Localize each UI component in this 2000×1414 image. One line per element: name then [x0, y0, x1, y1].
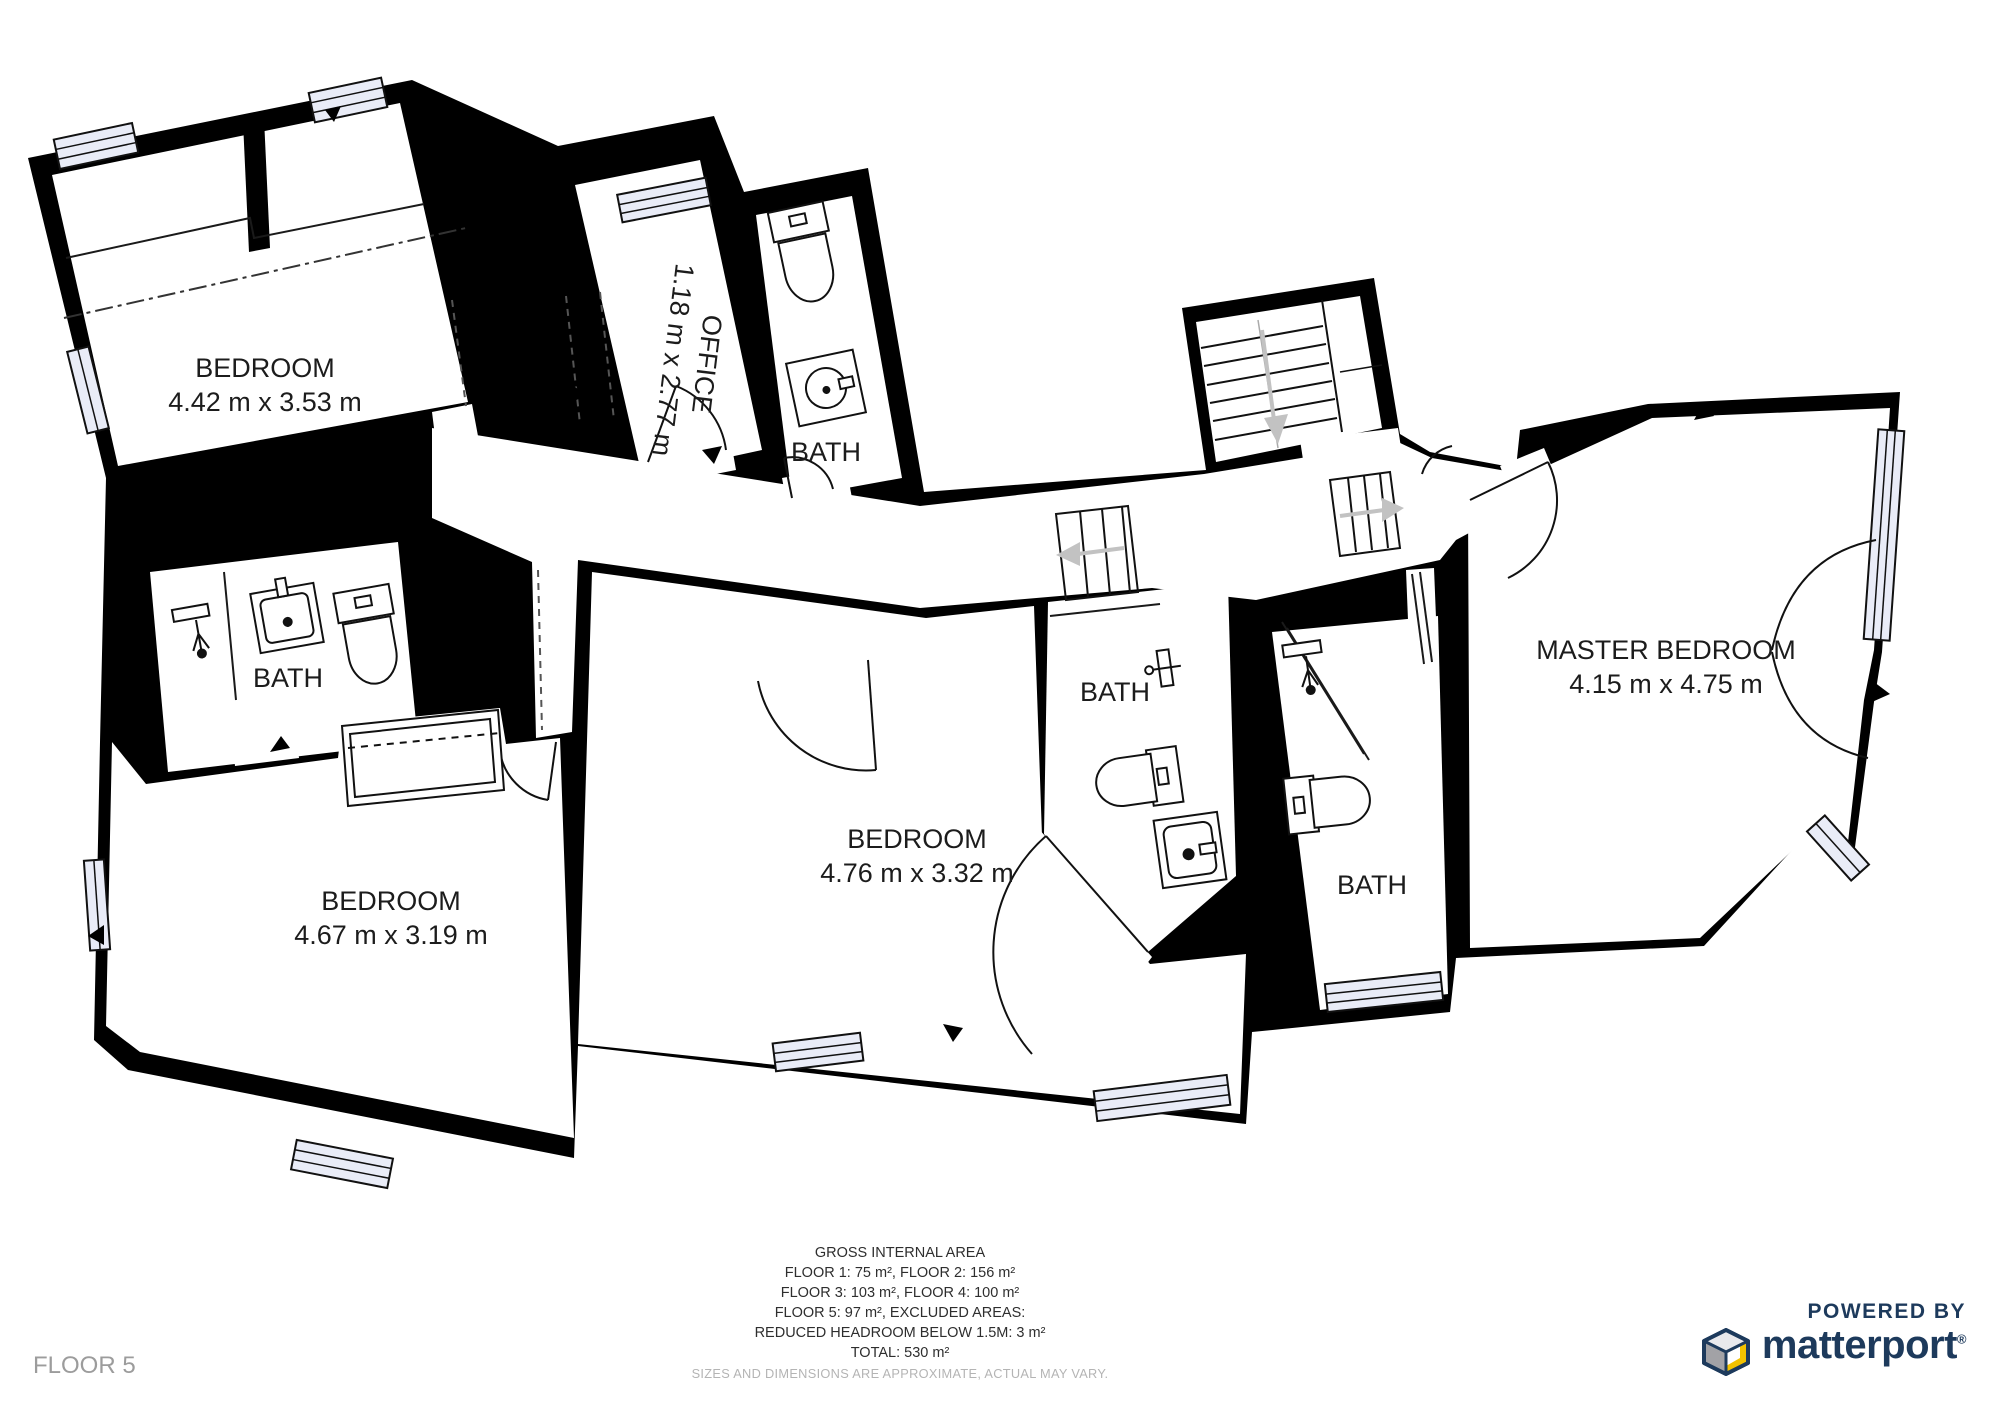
sink-icon: [1154, 812, 1227, 888]
window: [291, 1140, 393, 1188]
room-dims: 4.67 m x 3.19 m: [294, 918, 488, 952]
room-name: BEDROOM: [847, 824, 987, 854]
area-summary-title: GROSS INTERNAL AREA: [692, 1243, 1109, 1263]
floorplan-drawing: [0, 0, 2000, 1414]
disclaimer-text: SIZES AND DIMENSIONS ARE APPROXIMATE, AC…: [692, 1364, 1109, 1384]
room-name: BATH: [791, 437, 861, 467]
floorplan-page: BEDROOM 4.42 m x 3.53 m OFFICE 1.18 m x …: [0, 0, 2000, 1414]
label-bedroom-mid: BEDROOM 4.76 m x 3.32 m: [820, 822, 1014, 890]
room-name: BATH: [253, 663, 323, 693]
area-summary-line: FLOOR 3: 103 m², FLOOR 4: 100 m²: [692, 1283, 1109, 1303]
room-name: BATH: [1080, 677, 1150, 707]
brand-name: matterport: [1762, 1323, 1957, 1367]
label-bedroom-tl: BEDROOM 4.42 m x 3.53 m: [168, 351, 362, 419]
area-summary-line: FLOOR 1: 75 m², FLOOR 2: 156 m²: [692, 1263, 1109, 1283]
area-summary: GROSS INTERNAL AREA FLOOR 1: 75 m², FLOO…: [692, 1243, 1109, 1384]
label-master-bedroom: MASTER BEDROOM 4.15 m x 4.75 m: [1536, 633, 1796, 701]
label-bath-top: BATH: [791, 435, 861, 469]
area-summary-line: REDUCED HEADROOM BELOW 1.5M: 3 m²: [692, 1323, 1109, 1343]
label-bath-right: BATH: [1337, 868, 1407, 902]
matterport-wordmark: matterport®: [1762, 1324, 1966, 1366]
label-bedroom-bl: BEDROOM 4.67 m x 3.19 m: [294, 884, 488, 952]
room-dims: 4.15 m x 4.75 m: [1536, 667, 1796, 701]
floor-label: FLOOR 5: [33, 1352, 136, 1380]
powered-by-text: POWERED BY: [1762, 1300, 1966, 1324]
area-summary-line: FLOOR 5: 97 m², EXCLUDED AREAS:: [692, 1303, 1109, 1323]
room-dims: 4.42 m x 3.53 m: [168, 385, 362, 419]
room-name: MASTER BEDROOM: [1536, 635, 1796, 665]
bathtub-icon: [342, 710, 504, 806]
area-summary-line: TOTAL: 530 m²: [692, 1343, 1109, 1363]
registered-mark: ®: [1957, 1332, 1966, 1347]
sink-icon: [786, 350, 866, 427]
label-bath-mid: BATH: [1080, 675, 1150, 709]
label-bath-left: BATH: [253, 661, 323, 695]
matterport-cube-icon: [1700, 1328, 1752, 1376]
matterport-branding: POWERED BY matterport®: [1700, 1300, 1966, 1376]
room-name: BATH: [1337, 870, 1407, 900]
room-name: BEDROOM: [195, 353, 335, 383]
room-name: BEDROOM: [321, 886, 461, 916]
room-dims: 4.76 m x 3.32 m: [820, 856, 1014, 890]
